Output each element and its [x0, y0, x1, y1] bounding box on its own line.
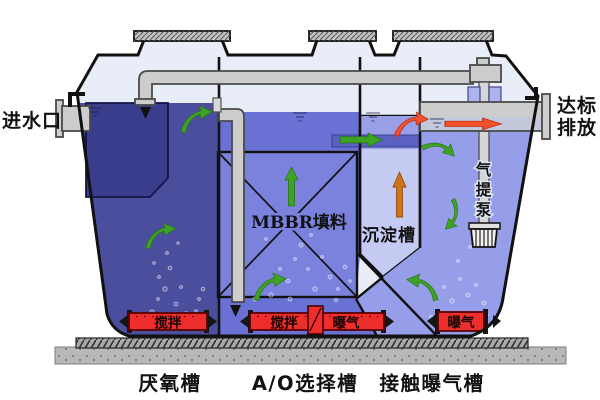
contact-tank-label: 接触曝气槽 [379, 372, 484, 395]
airlift-tee-collar [470, 65, 501, 82]
concrete-base [55, 338, 566, 364]
svg-text:泵: 泵 [475, 201, 492, 219]
outlet-flange [542, 94, 550, 139]
manhole-covers [134, 31, 493, 41]
outlet-label-line1: 达标 [557, 94, 597, 117]
diagram-canvas: 搅拌 搅拌 曝气 曝气 进水口 达标 排放 MBBR填料 沉淀槽 气 [0, 0, 600, 400]
contact-aerator-label: 曝气 [448, 314, 475, 331]
airlift-strainer [469, 223, 500, 247]
treatment-tank-diagram: 搅拌 搅拌 曝气 曝气 进水口 达标 排放 MBBR填料 沉淀槽 气 [0, 0, 600, 400]
outlet-label-line2: 排放 [557, 116, 597, 139]
anaerobic-mixer-device: 搅拌 [119, 310, 217, 333]
ao-tank-label: A/O选择槽 [252, 372, 358, 395]
inlet-baffle-box [86, 103, 168, 197]
inlet-label: 进水口 [2, 110, 62, 132]
anaerobic-tank-label: 厌氧槽 [138, 372, 201, 395]
sedimentation-label: 沉淀槽 [362, 225, 416, 246]
mbbr-label: MBBR填料 [251, 212, 347, 233]
svg-text:气: 气 [475, 160, 492, 179]
airlift-pump-label: 气 提 泵 [475, 160, 492, 219]
anaerobic-mixer-label: 搅拌 [155, 315, 182, 332]
svg-text:提: 提 [476, 181, 492, 199]
ao-aerator-label: 曝气 [333, 315, 360, 332]
return-pipe-outlet-flare [135, 99, 155, 105]
ao-mixer-label: 搅拌 [271, 315, 298, 332]
divider-weir-tab [213, 98, 221, 112]
